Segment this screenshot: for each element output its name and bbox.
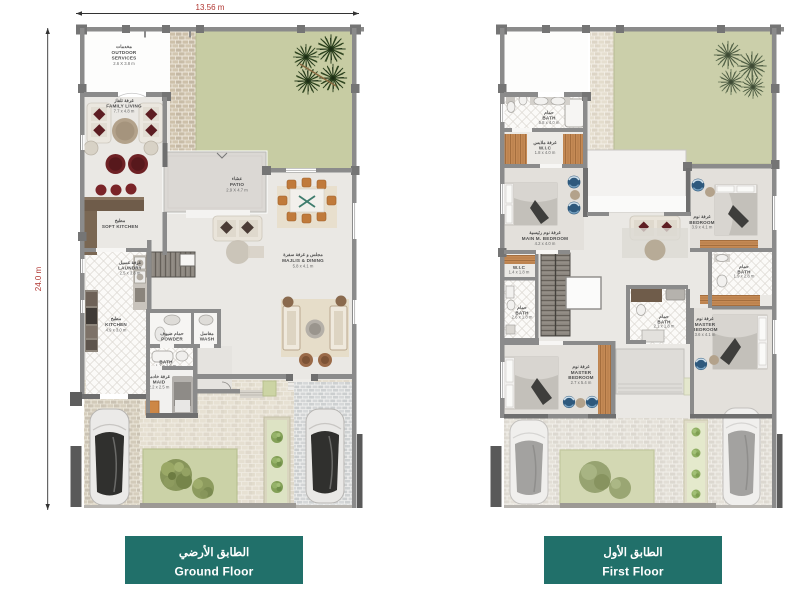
svg-text:First Floor: First Floor: [602, 565, 664, 579]
svg-text:24.0 m: 24.0 m: [34, 266, 43, 291]
svg-text:4.9 x 3.0 m: 4.9 x 3.0 m: [106, 328, 127, 333]
svg-text:13.56 m: 13.56 m: [196, 3, 225, 12]
svg-text:2.1 x 1.8 m: 2.1 x 1.8 m: [654, 324, 675, 329]
svg-text:2.5 x 3.8 m: 2.5 x 3.8 m: [120, 271, 141, 276]
svg-text:2.6 X 3.8 m: 2.6 X 3.8 m: [113, 61, 135, 66]
svg-text:3.6 x 4.1 m: 3.6 x 4.1 m: [695, 332, 716, 337]
svg-text:3.9 x 4.1 m: 3.9 x 4.1 m: [692, 225, 713, 230]
svg-text:SOFT KITCHEN: SOFT KITCHEN: [102, 224, 139, 229]
svg-text:مغاسل: مغاسل: [200, 331, 214, 336]
svg-text:2.2 x 2.5 m: 2.2 x 2.5 m: [149, 385, 170, 390]
svg-text:الطابق الأرضي: الطابق الأرضي: [179, 544, 249, 560]
svg-text:5.8 x 4.1 m: 5.8 x 4.1 m: [293, 264, 314, 269]
svg-text:OUTDOOR: OUTDOOR: [112, 50, 137, 55]
svg-text:2.7 x 5.4 m: 2.7 x 5.4 m: [571, 380, 592, 385]
svg-text:2.9 X 4.7 m: 2.9 X 4.7 m: [226, 188, 248, 193]
svg-text:PATIO: PATIO: [230, 182, 245, 187]
svg-text:مخدمات: مخدمات: [116, 44, 133, 49]
svg-text:WASH: WASH: [200, 337, 215, 342]
svg-text:عشاء: عشاء: [232, 176, 243, 181]
svg-text:KITCHEN: KITCHEN: [105, 322, 127, 327]
svg-text:MAJLIS & DINING: MAJLIS & DINING: [282, 258, 324, 263]
svg-text:4.2 x 4.0 m: 4.2 x 4.0 m: [535, 241, 556, 246]
svg-text:2.6 x 1.8 m: 2.6 x 1.8 m: [512, 315, 533, 320]
svg-text:1.9 x 2.8 m: 1.9 x 2.8 m: [734, 274, 755, 279]
svg-text:7.7 x 4.8 m: 7.7 x 4.8 m: [114, 109, 135, 114]
svg-text:1.8 x 4.0 m: 1.8 x 4.0 m: [535, 150, 556, 155]
svg-text:1.4 x 1.8 m: 1.4 x 1.8 m: [509, 270, 530, 275]
svg-text:5.8 x 4.0 m: 5.8 x 4.0 m: [539, 120, 560, 125]
svg-text:POWDER: POWDER: [161, 337, 183, 342]
svg-text:الطابق الأول: الطابق الأول: [603, 544, 662, 560]
svg-text:SERVICES: SERVICES: [112, 56, 137, 61]
svg-text:Ground Floor: Ground Floor: [174, 565, 253, 579]
